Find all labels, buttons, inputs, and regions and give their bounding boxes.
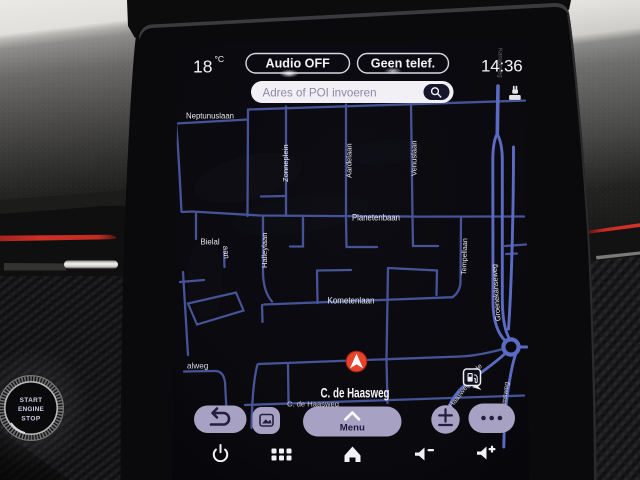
svg-text:START: START (20, 397, 43, 404)
svg-text:18: 18 (193, 57, 212, 77)
svg-text:alweg: alweg (187, 362, 209, 371)
svg-text:STOP: STOP (21, 415, 40, 422)
svg-text:Neptunuslaan: Neptunuslaan (186, 111, 234, 121)
svg-text:Venuslaan: Venuslaan (410, 141, 419, 176)
svg-text:Tempellaan: Tempellaan (459, 238, 469, 275)
svg-text:Zonneplein: Zonneplein (281, 144, 290, 182)
svg-text:14:36: 14:36 (481, 57, 523, 76)
svg-text:Halleylaan: Halleylaan (260, 233, 269, 268)
svg-text:ENGINE: ENGINE (18, 406, 45, 413)
svg-text:°C: °C (215, 54, 225, 64)
svg-text:Menu: Menu (340, 423, 365, 434)
svg-text:Geen telef.: Geen telef. (371, 57, 435, 71)
svg-text:Adres of POI invoeren: Adres of POI invoeren (263, 87, 377, 100)
svg-text:Kometenlaan: Kometenlaan (328, 296, 375, 306)
svg-text:Planetenbaan: Planetenbaan (352, 213, 400, 223)
svg-text:Aardelaan: Aardelaan (345, 143, 354, 178)
svg-text:aan: aan (221, 245, 231, 259)
svg-text:Bielal: Bielal (201, 238, 220, 247)
svg-text:C. de Haasweg: C. de Haasweg (321, 385, 390, 401)
svg-text:Audio OFF: Audio OFF (266, 57, 331, 71)
